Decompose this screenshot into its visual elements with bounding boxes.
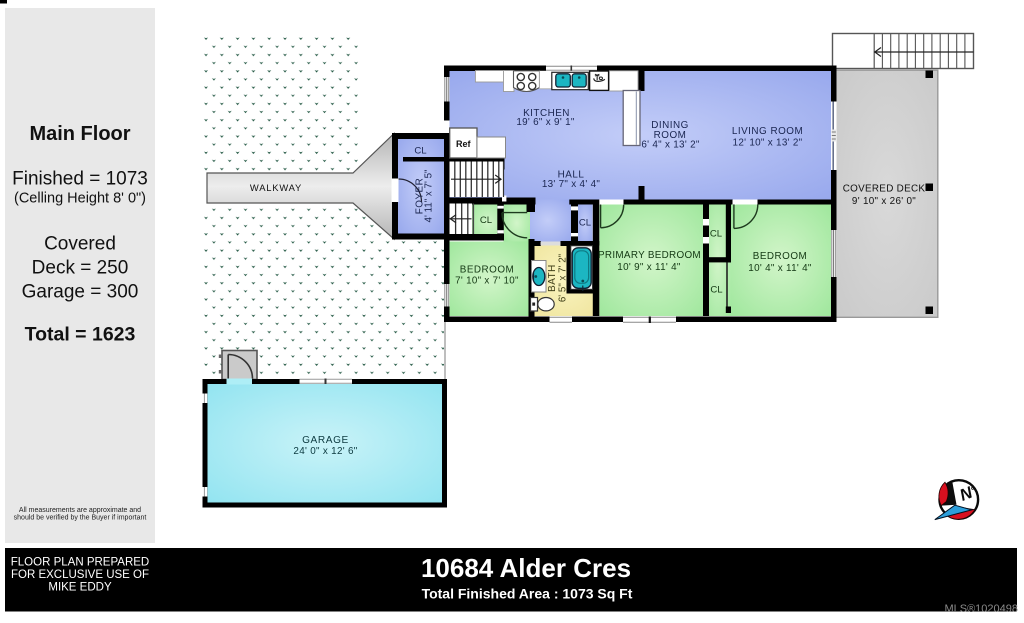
svg-text:Finished = 1073: Finished = 1073 [12,169,148,190]
svg-text:WALKWAY: WALKWAY [250,182,302,193]
svg-text:FLOOR PLAN PREPARED: FLOOR PLAN PREPARED [11,557,149,569]
svg-text:LIVING ROOM: LIVING ROOM [732,126,803,137]
svg-text:BATH: BATH [547,264,558,292]
svg-text:GARAGE: GARAGE [302,435,349,446]
svg-text:10' 4" x 11' 4": 10' 4" x 11' 4" [748,263,812,274]
svg-text:BEDROOM: BEDROOM [753,251,808,262]
svg-text:BEDROOM: BEDROOM [460,265,515,276]
svg-text:(Celling Height 8' 0"): (Celling Height 8' 0") [14,191,146,207]
svg-text:Covered: Covered [44,234,116,255]
svg-text:FOR EXCLUSIVE USE OF: FOR EXCLUSIVE USE OF [11,569,149,581]
svg-text:Total Finished Area : 1073 Sq: Total Finished Area : 1073 Sq Ft [422,586,633,602]
svg-text:CL: CL [710,229,723,240]
svg-text:10' 9" x 11' 4": 10' 9" x 11' 4" [617,262,681,273]
svg-text:CL: CL [710,285,723,296]
svg-text:Garage = 300: Garage = 300 [22,282,139,303]
svg-text:CL: CL [579,218,592,229]
svg-text:10684 Alder Cres: 10684 Alder Cres [421,553,631,583]
svg-text:6' 5" x 7' 2": 6' 5" x 7' 2" [558,253,569,302]
svg-text:All measurements are approxima: All measurements are approximate and [19,507,141,514]
svg-text:CL: CL [414,146,427,157]
svg-text:24' 0" x 12' 6": 24' 0" x 12' 6" [293,446,357,457]
svg-text:Deck = 250: Deck = 250 [32,258,129,279]
svg-text:19' 6" x 9' 1": 19' 6" x 9' 1" [516,117,575,128]
svg-text:6' 4" x 13' 2": 6' 4" x 13' 2" [641,140,700,151]
svg-text:12' 10" x 13' 2": 12' 10" x 13' 2" [733,138,803,149]
svg-text:PRIMARY BEDROOM: PRIMARY BEDROOM [598,250,701,261]
svg-text:9' 10" x 26' 0": 9' 10" x 26' 0" [852,196,916,207]
svg-text:7' 10" x 7' 10": 7' 10" x 7' 10" [455,275,519,286]
svg-text:should be verified by the Buye: should be verified by the Buyer if impor… [14,515,147,522]
svg-text:MIKE EDDY: MIKE EDDY [48,582,112,594]
svg-text:Total = 1623: Total = 1623 [25,324,136,346]
svg-text:CL: CL [480,215,493,226]
svg-text:Main Floor: Main Floor [29,123,130,145]
svg-text:Ref: Ref [456,139,472,149]
svg-text:COVERED DECK: COVERED DECK [843,184,926,195]
svg-text:13' 7" x 4' 4": 13' 7" x 4' 4" [542,179,601,190]
svg-text:MLS®1020498: MLS®1020498 [944,603,1018,615]
svg-text:4' 11" x 7' 5": 4' 11" x 7' 5" [424,169,435,223]
